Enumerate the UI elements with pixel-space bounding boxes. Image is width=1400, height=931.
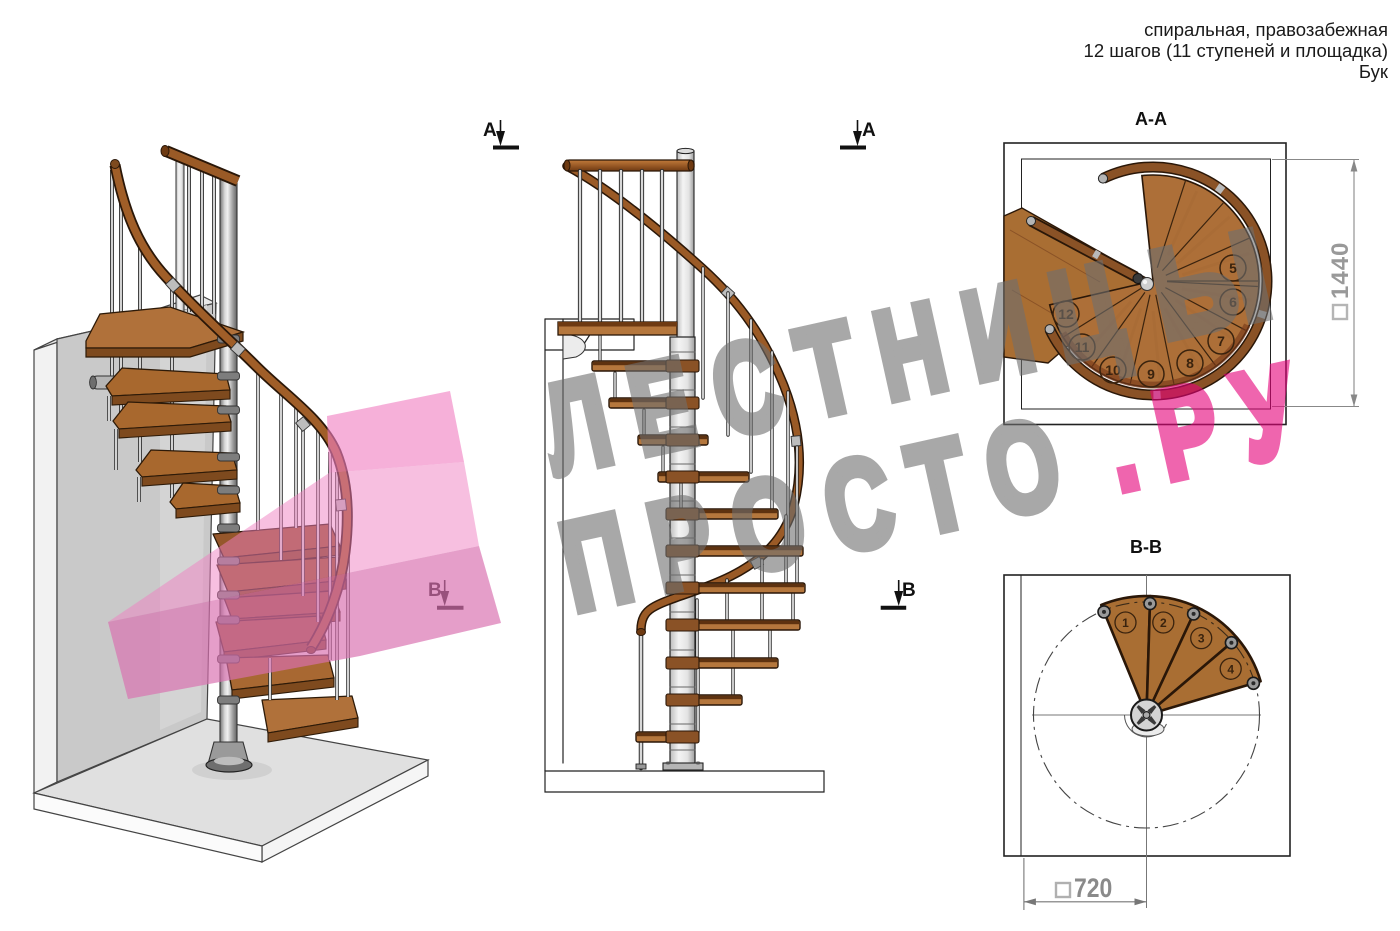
svg-text:1440: 1440 (1327, 242, 1354, 299)
svg-text:A: A (483, 120, 497, 141)
svg-text:4: 4 (1227, 662, 1234, 676)
svg-text:B: B (902, 580, 916, 601)
svg-text:1: 1 (1122, 616, 1129, 630)
svg-text:2: 2 (1160, 616, 1167, 630)
svg-text:720: 720 (1074, 873, 1112, 903)
svg-text:3: 3 (1198, 632, 1205, 646)
svg-text:A: A (862, 120, 876, 141)
